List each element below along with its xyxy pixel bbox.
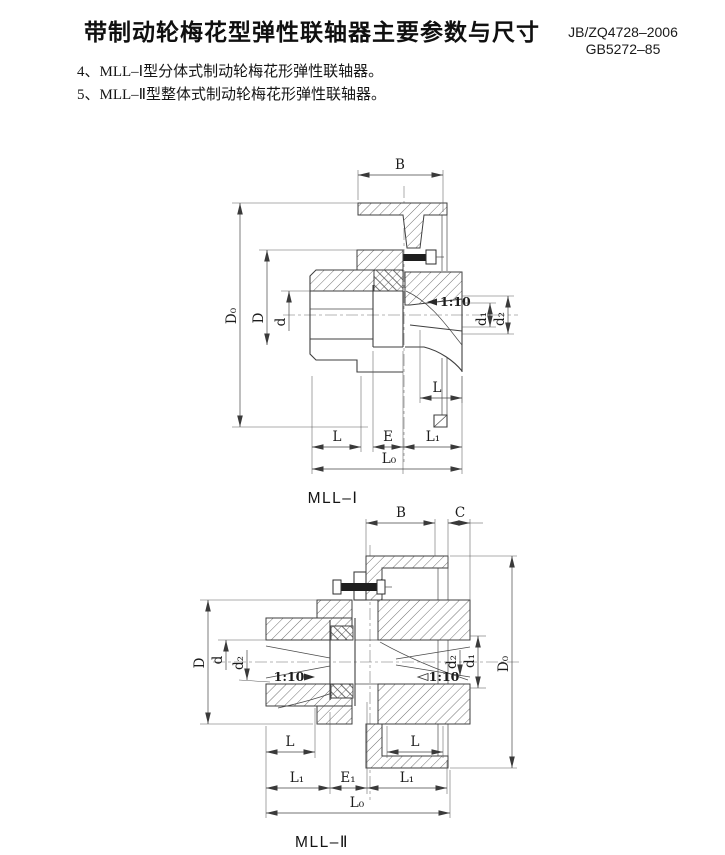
dim-label-b-fig1: B [395,157,405,173]
dim-label-l0-fig1: L₀ [382,451,397,467]
elastomer-spider-section [331,684,353,698]
dim-label-d1-fig2: d₁ [462,654,478,668]
dim-label-b-fig2: B [396,505,406,521]
dim-label-l-right-fig2: L [411,734,420,750]
dim-label-l-left-fig2: L [286,734,295,750]
figure-caption-mll1: MLL–Ⅰ [308,490,359,507]
taper-arrow-icon [304,674,315,681]
flange-bolt [333,572,392,600]
taper-label-fig2-left: 1:10 [274,669,305,684]
taper-annotation-left: 1:10 [274,669,315,684]
dim-label-d0-fig1: D₀ [224,307,240,324]
taper-annotation-right: 1:10 [418,669,460,684]
elastomer-spider-section [331,626,353,640]
dim-label-d-small-fig2: d [210,655,226,664]
taper-arrow-icon [418,674,428,681]
left-half-coupling [310,250,403,372]
figure-caption-mll2: MLL–Ⅱ [295,834,349,851]
technical-drawings: 1:10 B D₀ D d [0,0,725,855]
elastomer-spider-section [374,270,403,291]
dim-label-d-big-fig1: D [251,312,267,323]
dim-label-d2-fig1: d₂ [492,312,508,326]
dim-label-l0-fig2: L₀ [350,795,365,811]
dim-label-l-right-fig1: L [433,380,442,396]
taper-label-fig2-right: 1:10 [429,669,460,684]
dim-label-l1-right-fig2: L₁ [400,770,414,786]
dim-label-c-fig2: C [455,505,465,521]
dim-label-d-small-fig1: d [273,317,289,326]
dim-label-l-fig1: L [333,429,342,445]
dim-label-e1-fig2: E₁ [340,770,355,786]
document-page: 带制动轮梅花型弹性联轴器主要参数与尺寸 JB/ZQ4728–2006 GB527… [0,0,725,855]
figure-mll-1: 1:10 B D₀ D d [224,157,518,507]
dim-label-d0-fig2: D₀ [496,655,512,672]
dim-label-e-fig1: E [383,429,393,445]
dim-label-l1-left-fig2: L₁ [290,770,304,786]
figure-mll-2: 1:10 1:10 B C D₀ [192,505,520,851]
dim-label-d1-fig1: d₁ [474,312,490,326]
dim-label-d-big-fig2: D [192,657,208,668]
right-half-coupling [405,272,462,372]
dim-label-d2-left-fig2: d₂ [231,656,247,670]
dim-label-l1-fig1: L₁ [426,429,440,445]
dim-label-d2-right-fig2: d₂ [444,655,460,669]
middle-sleeve [373,285,403,347]
